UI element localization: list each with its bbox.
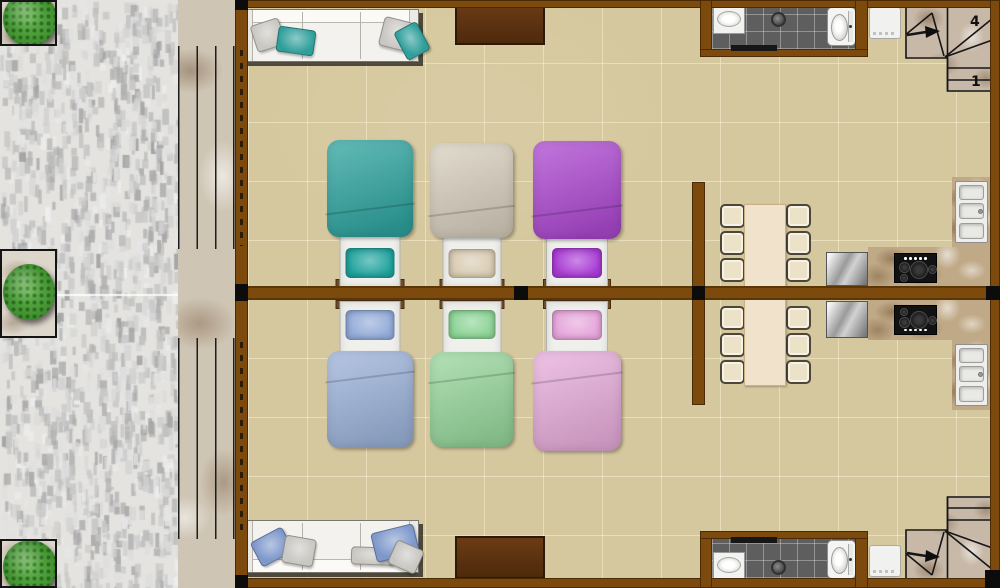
wall-divider — [235, 286, 1000, 300]
refrigerator — [826, 252, 868, 286]
flush-button — [849, 558, 852, 561]
column-block — [985, 570, 1000, 588]
bed-blanket — [430, 143, 513, 238]
burner — [900, 308, 908, 316]
bed-blanket — [533, 351, 621, 451]
sink-basin — [717, 11, 741, 27]
dining-chair — [720, 306, 745, 330]
flush-button — [849, 25, 852, 28]
bed-pillow — [448, 310, 495, 339]
bed-beige — [430, 143, 513, 288]
balcony-railing — [178, 338, 235, 539]
dining-chair — [720, 258, 745, 282]
bathroom-wall — [700, 49, 868, 57]
dining-chair — [786, 306, 811, 330]
bed-blue — [327, 300, 413, 448]
refrigerator — [826, 301, 868, 338]
stair-number: 1 — [971, 74, 981, 90]
sink-basin — [959, 223, 984, 239]
balcony-strip — [178, 0, 235, 588]
dining-table — [744, 204, 786, 293]
dining-chair — [786, 204, 811, 228]
bed-blanket — [430, 352, 513, 447]
tv-cabinet — [455, 536, 545, 579]
shower-head — [771, 560, 786, 575]
sink-drainboard — [959, 348, 984, 363]
faucet — [978, 372, 983, 377]
sofa — [243, 9, 419, 62]
column-block — [235, 284, 248, 301]
stair-number: 4 — [970, 14, 980, 30]
column-block — [692, 286, 705, 300]
kitchen-sink — [955, 181, 988, 243]
dining-chair — [786, 333, 811, 357]
toilet-bowl — [831, 547, 848, 574]
burner — [910, 311, 928, 329]
bathroom-wall — [700, 531, 712, 588]
staircase: 4 1 — [905, 0, 1000, 92]
bathroom-wall — [700, 531, 868, 539]
bed-blanket — [533, 141, 621, 239]
bed-purple — [533, 141, 621, 288]
burner — [899, 317, 910, 328]
wall-top — [235, 0, 1000, 8]
dining-chair — [786, 231, 811, 255]
bathroom-sink — [713, 6, 745, 34]
plant — [3, 540, 57, 588]
sliding-door — [240, 50, 243, 246]
planter-box — [0, 539, 57, 588]
cooktop-knobs — [904, 257, 907, 260]
bed-blanket — [327, 140, 413, 237]
bathroom-sink — [713, 552, 745, 580]
balcony-railing — [178, 46, 235, 249]
burner — [928, 316, 937, 325]
column-block — [235, 575, 248, 588]
sofa-pillow — [281, 534, 317, 567]
toilet — [827, 540, 856, 579]
bed-pillow — [346, 310, 395, 340]
planter-box — [0, 0, 57, 46]
column-block — [235, 0, 248, 10]
cooktop — [894, 253, 937, 283]
kitchen-sink — [955, 344, 988, 406]
column-block — [514, 286, 528, 300]
washing-machine — [869, 545, 901, 577]
washing-machine — [869, 7, 901, 39]
tv-cabinet — [455, 2, 545, 45]
bed-pillow — [552, 310, 602, 340]
burner — [910, 261, 928, 279]
bed-blanket — [327, 351, 413, 448]
cooktop — [894, 305, 937, 335]
sink-basin — [717, 557, 741, 573]
floor-plan: 4 1 — [0, 0, 1000, 588]
column-block — [986, 286, 1000, 300]
toilet — [827, 7, 856, 46]
plant — [3, 0, 57, 46]
wall-bottom — [235, 578, 1000, 588]
burner — [900, 274, 908, 282]
sofa-cushion-seam — [360, 12, 361, 59]
burner — [899, 262, 910, 273]
burner — [928, 265, 937, 274]
stair-linework: 4 1 — [905, 0, 1000, 92]
dining-chair — [786, 258, 811, 282]
sliding-door — [240, 342, 243, 536]
bed-pillow — [346, 248, 395, 278]
sofa — [243, 520, 419, 573]
sink-basin — [959, 386, 984, 402]
faucet — [978, 209, 983, 214]
dining-chair — [786, 360, 811, 384]
bed-teal — [327, 140, 413, 288]
bathroom-door — [731, 45, 777, 51]
dining-table — [744, 297, 786, 386]
sink-drainboard — [959, 185, 984, 200]
sofa-pillow-accent — [275, 25, 316, 56]
bed-pillow — [448, 249, 495, 278]
bathroom-wall — [855, 531, 868, 588]
dining-chair — [720, 204, 745, 228]
plant — [3, 264, 55, 320]
bed-pink — [533, 300, 621, 451]
dining-chair — [720, 333, 745, 357]
dining-chair — [720, 360, 745, 384]
shower-head — [771, 12, 786, 27]
bed-green — [430, 300, 513, 447]
bathroom-door — [731, 537, 777, 543]
bed-pillow — [552, 248, 602, 278]
dining-chair — [720, 231, 745, 255]
toilet-bowl — [831, 14, 848, 41]
cooktop-knobs — [904, 329, 907, 332]
planter-box — [0, 249, 57, 338]
